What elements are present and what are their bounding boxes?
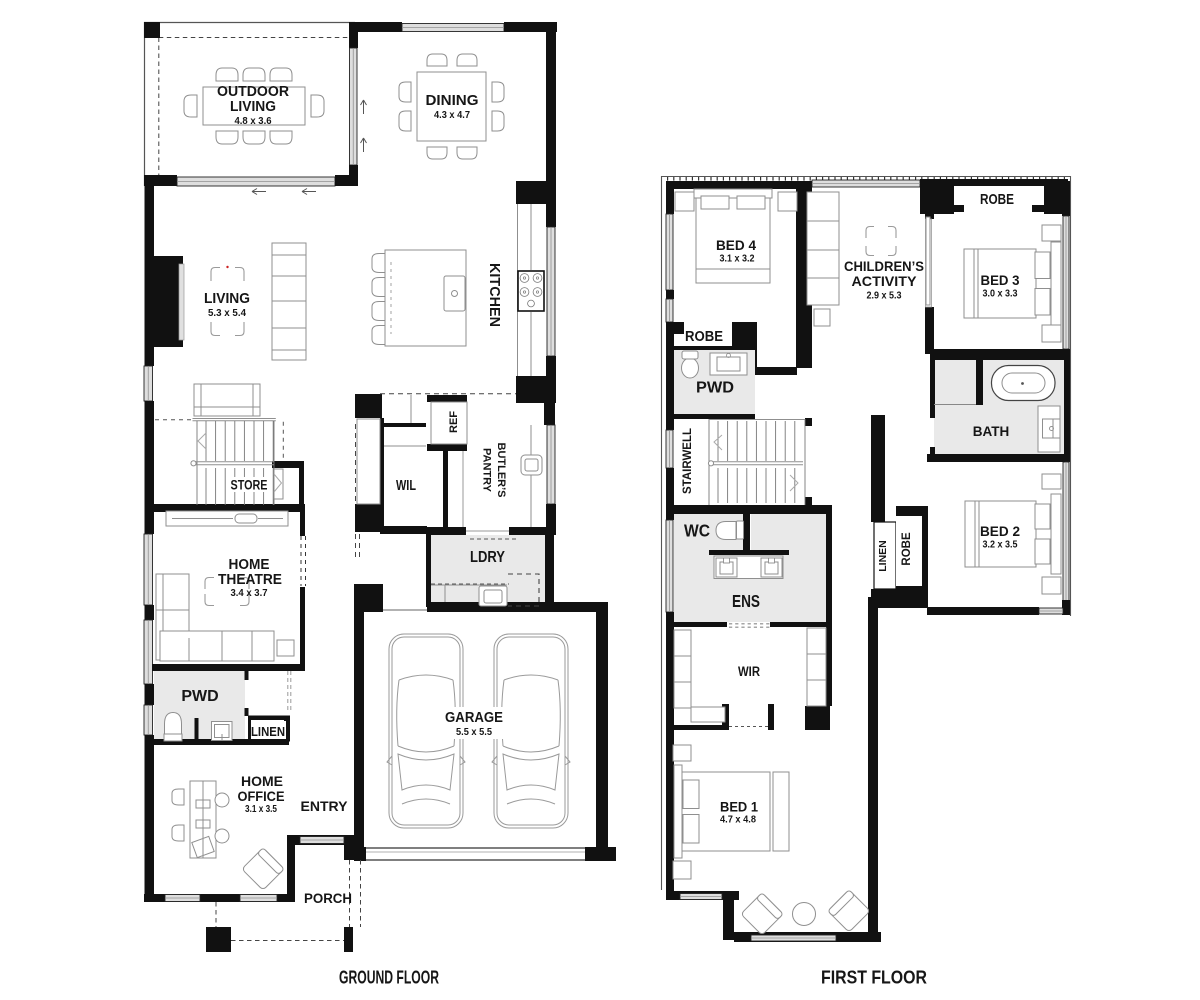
svg-text:LIVING: LIVING xyxy=(230,99,276,115)
svg-text:3.1 x 3.5: 3.1 x 3.5 xyxy=(245,803,277,815)
svg-text:GROUND FLOOR: GROUND FLOOR xyxy=(339,968,439,988)
svg-text:THEATRE: THEATRE xyxy=(218,572,282,588)
svg-text:BATH: BATH xyxy=(973,424,1010,439)
svg-text:LIVING: LIVING xyxy=(204,290,250,307)
svg-text:WIL: WIL xyxy=(396,477,416,494)
svg-text:FIRST FLOOR: FIRST FLOOR xyxy=(821,968,927,988)
svg-text:ENTRY: ENTRY xyxy=(301,798,349,814)
svg-text:LINEN: LINEN xyxy=(877,540,889,572)
svg-text:OUTDOOR: OUTDOOR xyxy=(217,84,290,100)
svg-text:PORCH: PORCH xyxy=(304,891,352,906)
svg-text:ACTIVITY: ACTIVITY xyxy=(852,273,918,289)
svg-text:WIR: WIR xyxy=(738,664,760,679)
svg-text:ROBE: ROBE xyxy=(980,191,1014,208)
svg-text:3.4 x 3.7: 3.4 x 3.7 xyxy=(231,587,268,599)
svg-text:5.3 x 5.4: 5.3 x 5.4 xyxy=(208,307,246,319)
svg-text:4.3 x 4.7: 4.3 x 4.7 xyxy=(434,109,470,121)
svg-text:4.7 x 4.8: 4.7 x 4.8 xyxy=(720,814,756,826)
svg-text:LINEN: LINEN xyxy=(251,724,285,739)
svg-text:BED 1: BED 1 xyxy=(720,799,758,815)
svg-text:5.5 x 5.5: 5.5 x 5.5 xyxy=(456,726,492,738)
svg-text:GARAGE: GARAGE xyxy=(445,710,503,726)
svg-text:PWD: PWD xyxy=(696,380,734,397)
svg-text:2.9 x 5.3: 2.9 x 5.3 xyxy=(867,290,902,302)
svg-text:STORE: STORE xyxy=(231,478,268,493)
svg-text:KITCHEN: KITCHEN xyxy=(486,263,503,327)
svg-text:HOME: HOME xyxy=(229,557,270,573)
svg-text:3.1 x 3.2: 3.1 x 3.2 xyxy=(720,253,755,265)
svg-text:BED 3: BED 3 xyxy=(981,272,1020,288)
svg-text:DINING: DINING xyxy=(426,92,479,109)
svg-text:CHILDREN’S: CHILDREN’S xyxy=(844,258,924,274)
svg-text:PANTRY: PANTRY xyxy=(481,448,493,493)
svg-text:3.0 x 3.3: 3.0 x 3.3 xyxy=(983,288,1018,300)
svg-text:BED 2: BED 2 xyxy=(980,523,1020,539)
svg-text:BED 4: BED 4 xyxy=(716,237,756,253)
svg-text:LDRY: LDRY xyxy=(470,549,505,566)
svg-text:4.8 x 3.6: 4.8 x 3.6 xyxy=(235,115,272,127)
svg-text:REF: REF xyxy=(448,411,460,433)
svg-text:ROBE: ROBE xyxy=(685,329,723,345)
svg-text:BUTLER’S: BUTLER’S xyxy=(495,443,507,498)
svg-text:STAIRWELL: STAIRWELL xyxy=(682,428,694,494)
svg-text:ENS: ENS xyxy=(732,591,760,611)
svg-text:PWD: PWD xyxy=(181,688,218,705)
svg-text:3.2 x 3.5: 3.2 x 3.5 xyxy=(983,539,1018,551)
svg-text:WC: WC xyxy=(684,521,710,541)
svg-text:OFFICE: OFFICE xyxy=(238,788,285,804)
svg-text:ROBE: ROBE xyxy=(901,532,913,566)
svg-text:HOME: HOME xyxy=(241,773,283,789)
